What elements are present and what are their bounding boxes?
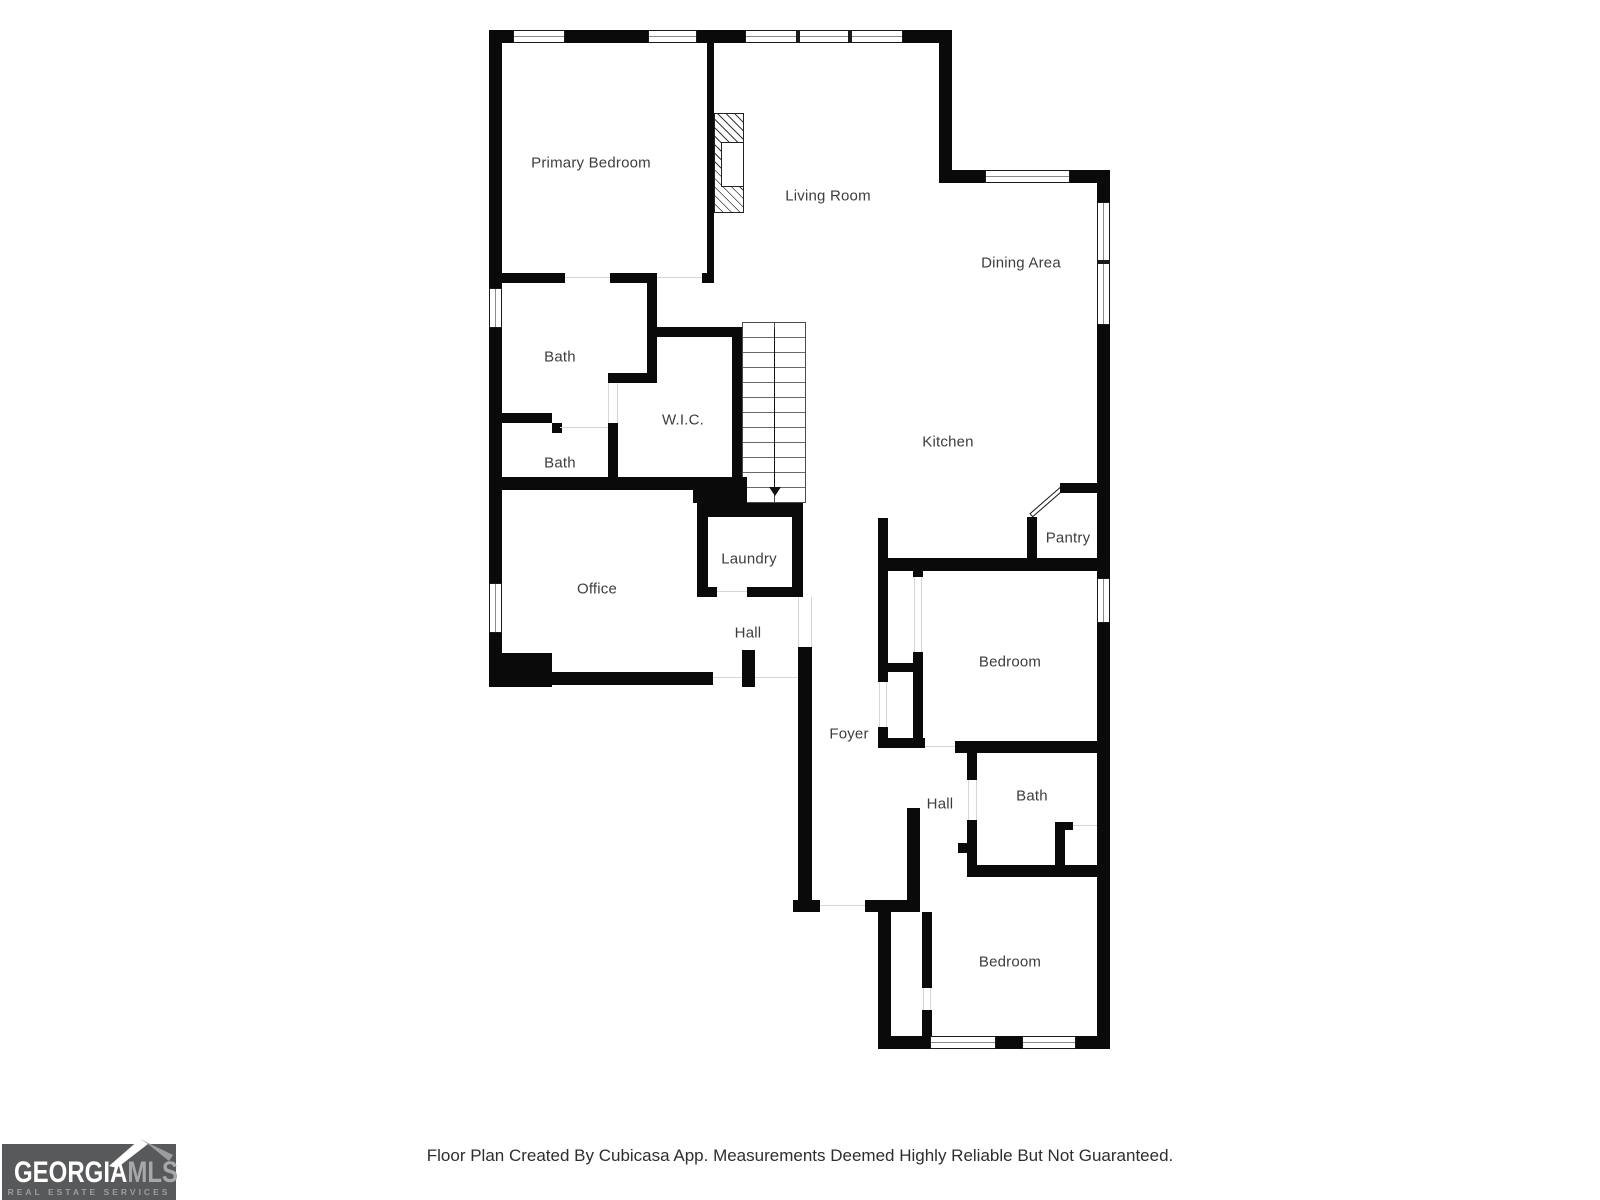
wall <box>793 900 820 912</box>
window-mullion <box>848 31 852 42</box>
window <box>648 30 697 43</box>
wall <box>939 170 985 183</box>
door-opening <box>608 383 609 423</box>
door-opening <box>923 988 924 1010</box>
georgia-mls-logo: GEORGIAMLS REAL ESTATE SERVICES <box>2 1144 176 1200</box>
wall <box>922 912 932 988</box>
room-label-laundry: Laundry <box>721 551 777 568</box>
stair-arrowhead-icon <box>769 487 781 496</box>
wall <box>1027 517 1037 558</box>
wall <box>878 558 1097 571</box>
door-opening <box>798 597 799 647</box>
door-opening <box>930 988 931 1010</box>
wall <box>878 1036 930 1049</box>
room-label-bath-second: Bath <box>544 455 576 472</box>
door-opening <box>560 427 608 428</box>
wall <box>967 753 977 780</box>
window-glass-line <box>495 289 496 327</box>
floor-plan: Primary BedroomLiving RoomDining AreaBat… <box>0 0 1600 1200</box>
wall <box>1076 1036 1110 1049</box>
room-label-kitchen: Kitchen <box>922 434 973 451</box>
door-opening <box>886 682 887 727</box>
wall <box>742 650 755 687</box>
wall <box>792 503 803 597</box>
footer-disclaimer: Floor Plan Created By Cubicasa App. Meas… <box>0 1146 1600 1166</box>
door-opening <box>976 780 977 820</box>
wall <box>697 587 717 597</box>
wall <box>967 865 1110 877</box>
wall <box>552 672 713 685</box>
room-label-office: Office <box>577 581 617 598</box>
wall <box>657 327 742 337</box>
door-opening <box>925 746 955 747</box>
room-label-bedroom-lower: Bedroom <box>979 954 1041 971</box>
room-label-bath-lower: Bath <box>1016 788 1048 805</box>
room-label-wic: W.I.C. <box>662 412 704 429</box>
door-opening <box>755 677 798 678</box>
wall <box>878 902 891 1049</box>
window-glass-line <box>931 1042 995 1043</box>
wall <box>489 328 502 583</box>
floor-plan-page: Primary BedroomLiving RoomDining AreaBat… <box>0 0 1600 1200</box>
wall <box>1097 623 1110 1049</box>
wall <box>878 518 888 682</box>
door-opening <box>968 780 969 820</box>
wall <box>610 273 657 283</box>
wall <box>907 808 920 912</box>
wall <box>693 477 747 503</box>
logo-tagline: REAL ESTATE SERVICES <box>2 1187 176 1197</box>
wall <box>1060 483 1097 493</box>
room-label-primary-bedroom: Primary Bedroom <box>531 155 651 172</box>
door-opening <box>879 682 880 727</box>
window-glass-line <box>1023 1042 1075 1043</box>
window <box>489 583 502 633</box>
window <box>1097 202 1110 325</box>
door-opening <box>717 591 747 592</box>
wall <box>552 423 562 433</box>
door-opening <box>657 277 702 278</box>
wall <box>565 30 648 43</box>
window-glass-line <box>746 36 902 37</box>
door-opening <box>1073 825 1097 826</box>
wall <box>608 373 657 383</box>
window <box>513 30 565 43</box>
window <box>745 30 903 43</box>
room-label-living-room: Living Room <box>785 188 871 205</box>
wall <box>1097 325 1110 578</box>
wall <box>489 30 513 43</box>
fireplace-firebox <box>721 142 744 187</box>
wall <box>798 647 812 912</box>
wall <box>903 30 952 43</box>
window <box>1097 578 1110 623</box>
window <box>985 170 1070 183</box>
door-opening <box>565 277 610 278</box>
logo-brand-text: GEORGIAMLS <box>14 1156 178 1190</box>
wall <box>489 633 502 653</box>
room-label-bedroom-middle: Bedroom <box>979 654 1041 671</box>
wall <box>697 30 745 43</box>
wall <box>502 273 565 283</box>
door-opening <box>820 905 865 906</box>
wall <box>1070 170 1110 183</box>
wall <box>647 283 657 375</box>
window-glass-line <box>514 36 564 37</box>
door-opening <box>617 383 618 423</box>
window-glass-line <box>495 584 496 632</box>
door-opening <box>713 677 742 678</box>
wall <box>958 843 967 853</box>
door-opening <box>921 577 922 652</box>
wall <box>922 1010 932 1036</box>
window <box>489 288 502 328</box>
room-label-hall-upper: Hall <box>735 625 762 642</box>
window-glass-line <box>649 36 696 37</box>
room-label-dining-area: Dining Area <box>981 255 1061 272</box>
room-label-bath-primary: Bath <box>544 349 576 366</box>
wall <box>707 43 714 273</box>
wall <box>996 1036 1022 1049</box>
wall <box>1097 183 1110 202</box>
wall <box>489 43 502 288</box>
room-label-foyer: Foyer <box>829 726 868 743</box>
staircase <box>742 322 806 503</box>
door-opening <box>811 597 812 647</box>
window-glass-line <box>986 176 1069 177</box>
logo-text-mls: MLS <box>127 1156 178 1189</box>
window <box>930 1036 996 1049</box>
wall <box>489 653 552 687</box>
wall <box>702 273 714 283</box>
room-label-hall-lower: Hall <box>927 796 954 813</box>
stair-direction-arrow <box>774 329 775 489</box>
logo-text-georgia: GEORGIA <box>14 1156 127 1189</box>
wall <box>939 43 952 183</box>
door-opening <box>914 577 915 652</box>
window-mullion <box>796 31 800 42</box>
wall <box>1055 822 1073 830</box>
wall <box>878 663 923 672</box>
window <box>1022 1036 1076 1049</box>
room-label-pantry: Pantry <box>1046 530 1091 547</box>
wall <box>697 503 803 517</box>
wall <box>489 413 552 423</box>
window-mullion <box>1098 260 1109 264</box>
wall <box>955 741 1097 753</box>
wall <box>489 477 693 490</box>
wall <box>697 517 708 597</box>
window-glass-line <box>1103 579 1104 622</box>
